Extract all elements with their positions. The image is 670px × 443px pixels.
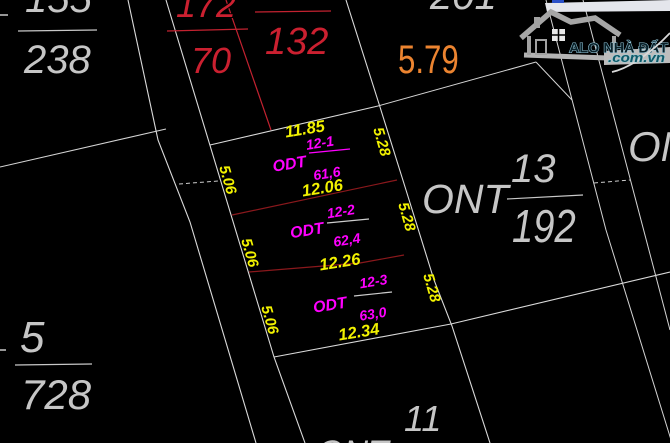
svg-text:13: 13 (511, 147, 556, 191)
svg-text:155: 155 (25, 0, 92, 21)
svg-text:70: 70 (191, 40, 231, 81)
svg-text:172: 172 (176, 0, 236, 25)
svg-text:132: 132 (265, 21, 328, 63)
svg-text:.com.vn: .com.vn (608, 50, 665, 65)
svg-text:238: 238 (23, 38, 91, 82)
svg-text:5: 5 (20, 313, 45, 362)
svg-text:ONT: ONT (422, 176, 512, 222)
svg-text:728: 728 (21, 371, 92, 418)
svg-text:192: 192 (512, 201, 576, 252)
svg-text:201: 201 (429, 0, 497, 18)
svg-text:ONT: ONT (628, 123, 670, 170)
svg-text:11: 11 (404, 398, 441, 439)
svg-text:ONT: ONT (317, 434, 391, 443)
svg-text:5.79: 5.79 (398, 37, 459, 82)
